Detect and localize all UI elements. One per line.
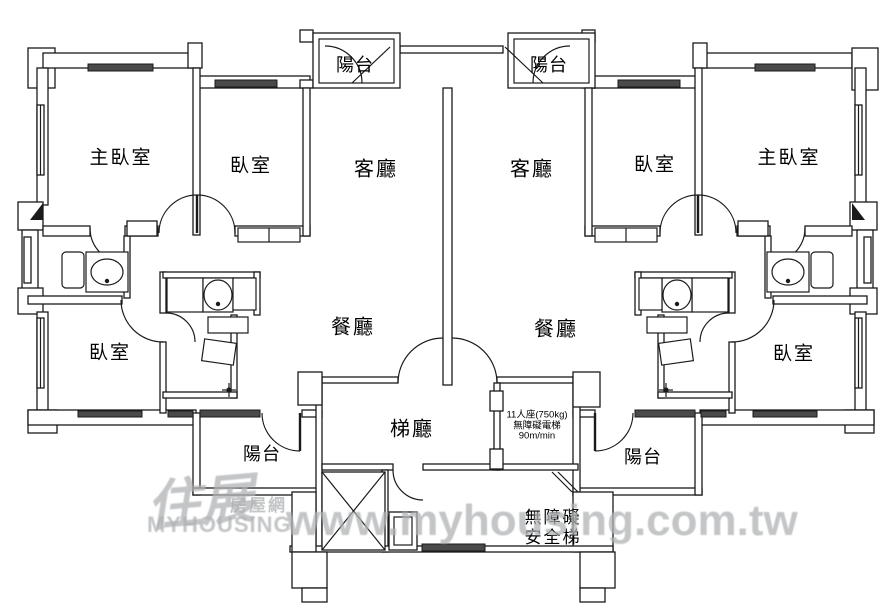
- room-label-balcony-top-right: 陽台: [530, 51, 568, 77]
- stairwell-x-icon: [322, 472, 385, 550]
- room-label-living-right: 客廳: [510, 153, 554, 182]
- elevator-spec-line1: 11人座(750kg): [506, 410, 567, 421]
- room-label-dining-left: 餐廳: [331, 311, 375, 340]
- room-label-balcony-bottom-right: 陽台: [624, 443, 662, 469]
- room-label-bedroom-bottom-right: 臥室: [773, 339, 815, 366]
- room-label-master-bedroom-right: 主臥室: [757, 143, 820, 170]
- room-label-bedroom-top-left: 臥室: [230, 151, 272, 178]
- floor-plan-drawing: .w{fill:#fff;stroke:#1a1a1a;stroke-width…: [0, 0, 893, 606]
- room-label-elevator-hall: 梯廳: [390, 413, 434, 442]
- accessible-stairs-label: 無障礙 安全梯: [525, 508, 582, 548]
- room-label-bedroom-top-right: 臥室: [634, 150, 676, 177]
- room-label-dining-right: 餐廳: [534, 313, 578, 342]
- floor-plan-page: .w{fill:#fff;stroke:#1a1a1a;stroke-width…: [0, 0, 893, 606]
- room-label-master-bedroom-left: 主臥室: [89, 143, 152, 170]
- elevator-spec-text: 11人座(750kg) 無障礙電梯 90m/min: [506, 410, 567, 442]
- room-label-living-left: 客廳: [354, 153, 398, 182]
- accessible-stairs-line2: 安全梯: [525, 528, 582, 548]
- room-label-balcony-top-left: 陽台: [336, 51, 374, 77]
- room-label-balcony-bottom-left: 陽台: [243, 440, 281, 466]
- elevator-spec-line3: 90m/min: [506, 431, 567, 442]
- room-label-bedroom-bottom-left: 臥室: [89, 338, 131, 365]
- accessible-stairs-line1: 無障礙: [525, 508, 582, 528]
